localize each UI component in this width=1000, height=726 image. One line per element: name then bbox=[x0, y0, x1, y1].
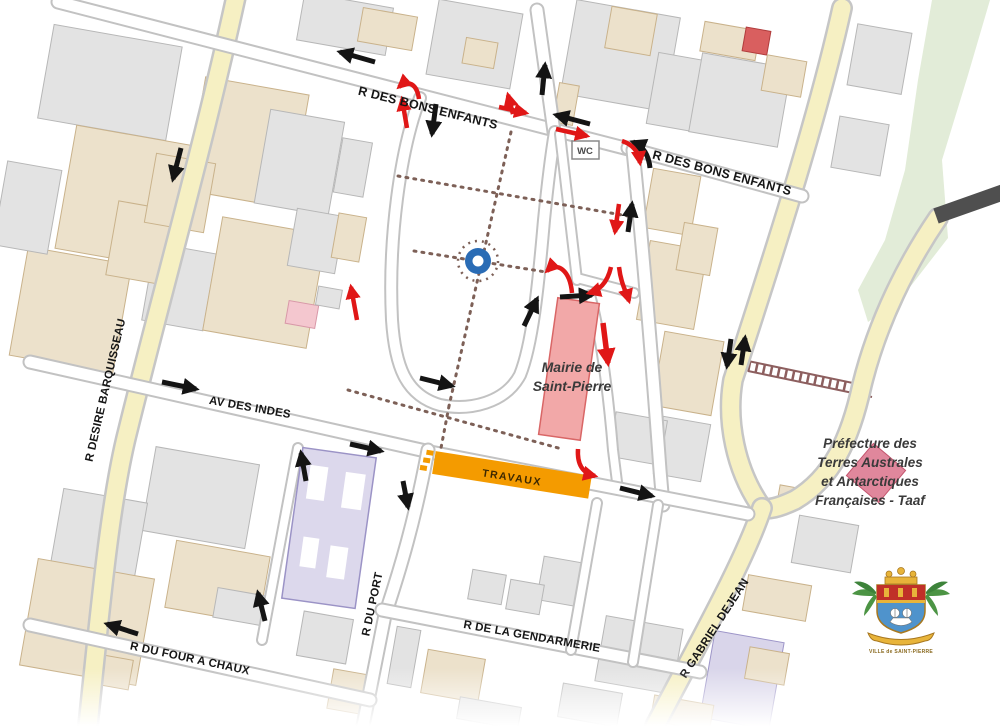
building bbox=[791, 515, 858, 573]
arrow-black bbox=[420, 378, 452, 386]
building bbox=[315, 286, 342, 309]
crest-shield bbox=[877, 585, 925, 633]
arrow-black bbox=[340, 52, 375, 62]
wc-marker: WC bbox=[572, 141, 599, 159]
arrow-red bbox=[351, 287, 357, 320]
traffic-plan-map: TRAVAUX WC bbox=[0, 0, 1000, 726]
fountain bbox=[465, 248, 491, 274]
road-closed-dark-segment bbox=[936, 192, 1000, 216]
travaux-zone: TRAVAUX bbox=[420, 450, 592, 499]
bottom-fade bbox=[0, 668, 1000, 726]
building bbox=[506, 579, 545, 614]
prefecture-label-line3: et Antarctiques bbox=[821, 474, 919, 489]
arrow-black bbox=[542, 65, 545, 95]
building-red bbox=[742, 27, 771, 55]
building bbox=[254, 109, 344, 216]
arrow-black bbox=[628, 204, 632, 232]
arrow-red bbox=[547, 267, 572, 293]
building bbox=[0, 161, 62, 254]
prefecture-label-line1: Préfecture des bbox=[823, 436, 917, 451]
wc-label: WC bbox=[577, 146, 593, 157]
building bbox=[296, 611, 353, 664]
prefecture-label-line2: Terres Australes bbox=[817, 455, 923, 470]
mairie-label-line2: Saint-Pierre bbox=[533, 378, 612, 394]
building bbox=[141, 447, 259, 549]
building bbox=[831, 116, 889, 176]
arrow-black bbox=[560, 295, 592, 297]
building bbox=[742, 575, 811, 622]
building bbox=[847, 24, 912, 95]
building bbox=[652, 331, 724, 415]
arrow-red bbox=[578, 449, 595, 476]
crest-scroll bbox=[868, 633, 934, 645]
building bbox=[462, 37, 498, 68]
crest-crown bbox=[885, 568, 917, 585]
building bbox=[38, 24, 183, 140]
crest-palm-left bbox=[852, 581, 877, 616]
crest-caption: VILLE de SAINT-PIERRE bbox=[869, 649, 933, 655]
city-crest: VILLE de SAINT-PIERRE bbox=[852, 568, 950, 656]
crest-palm-right bbox=[925, 581, 950, 616]
building bbox=[468, 569, 507, 604]
arrow-black bbox=[403, 481, 408, 507]
building bbox=[605, 6, 658, 55]
building bbox=[761, 55, 807, 97]
arrow-red bbox=[615, 204, 619, 232]
building bbox=[285, 301, 319, 329]
mairie-label-line1: Mairie de bbox=[542, 359, 603, 375]
prefecture-label-line4: Françaises - Taaf bbox=[815, 493, 926, 508]
